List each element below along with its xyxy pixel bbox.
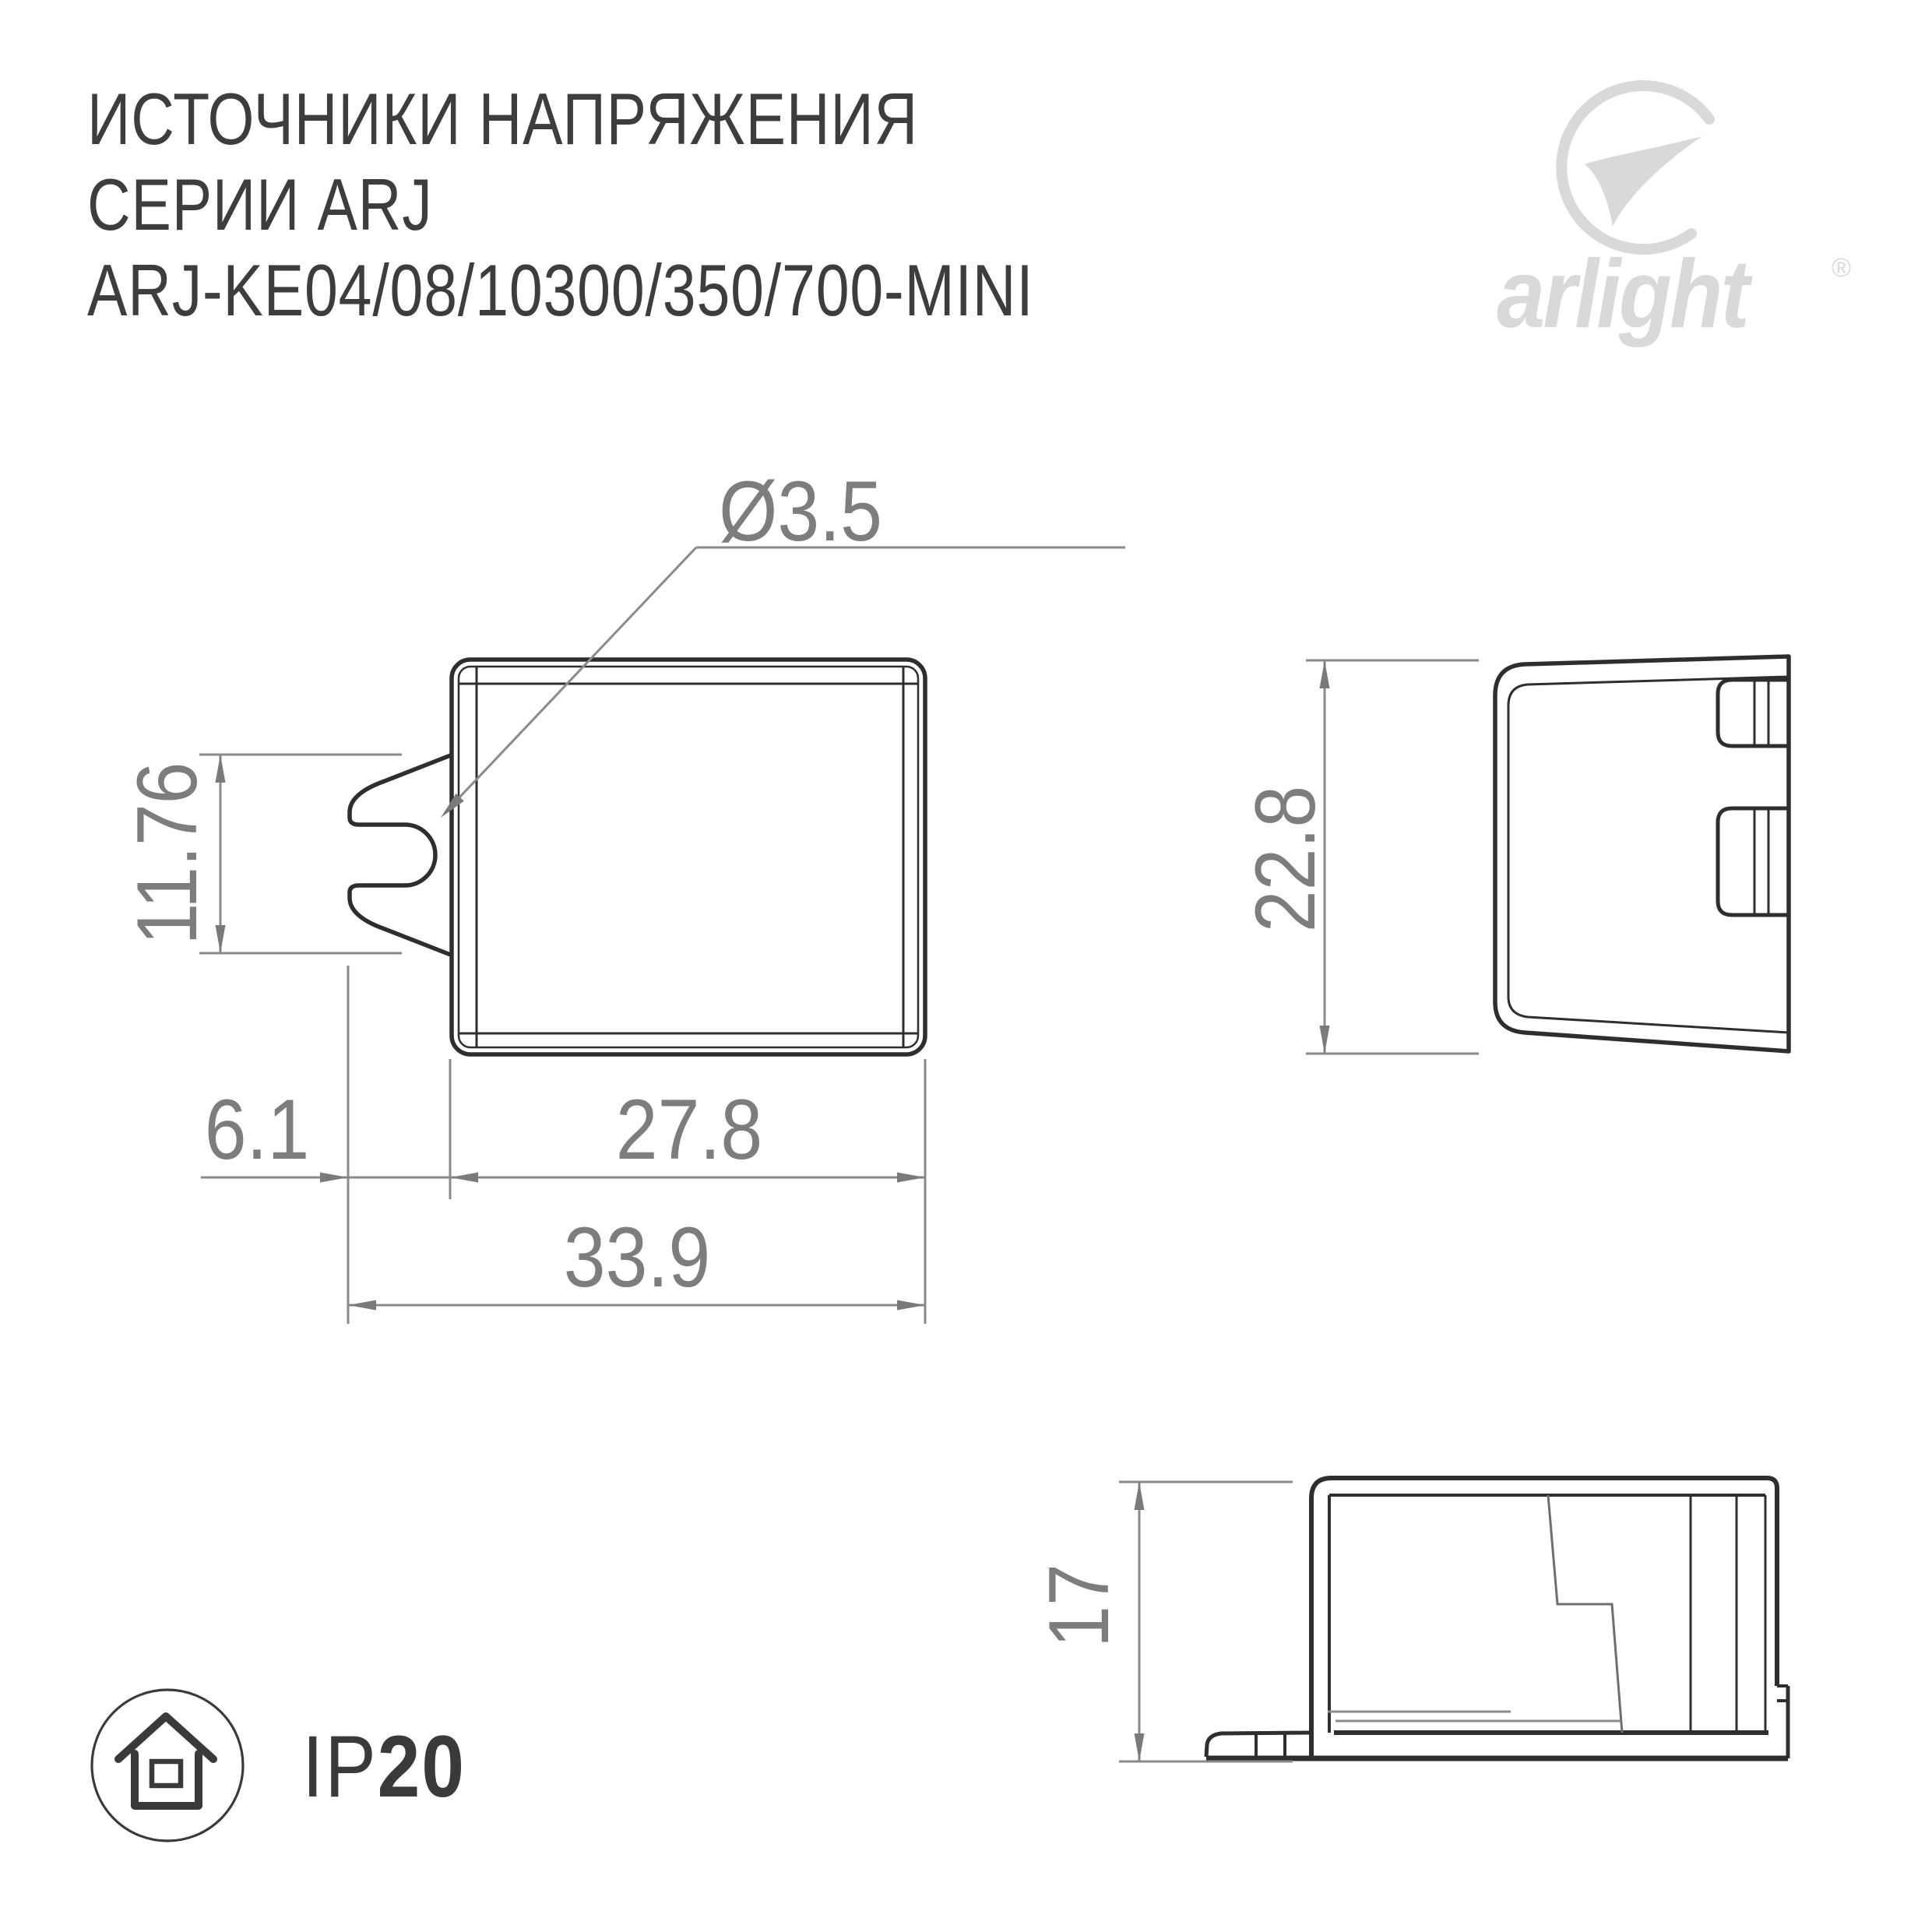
mounting-foot-outline (1206, 1733, 1311, 1757)
arrowhead-left-icon (348, 1300, 376, 1311)
arrowhead-left-icon (450, 1173, 478, 1183)
side-view (1495, 656, 1789, 1051)
dim-widths: 6.1 27.8 33.9 (201, 966, 925, 1324)
arrowhead-up-icon (1135, 1482, 1145, 1510)
profile-view (1206, 1478, 1788, 1758)
ip-value: 20 (378, 1719, 466, 1815)
page-title: ИСТОЧНИКИ НАПРЯЖЕНИЯ СЕРИИ ARJ ARJ-KE04/… (87, 79, 1033, 332)
dim-label-side-height: 22.8 (1237, 786, 1332, 932)
dim-profile-height: 17 (1030, 1482, 1293, 1761)
profile-body-outline (1311, 1478, 1777, 1757)
logo-wordmark: arlight (1497, 240, 1753, 348)
logo-swoosh-icon (1585, 136, 1702, 227)
house-window (152, 1761, 181, 1786)
datasheet-page: ИСТОЧНИКИ НАПРЯЖЕНИЯ СЕРИИ ARJ ARJ-KE04/… (0, 0, 1932, 1932)
mounting-tab-outline (350, 755, 452, 955)
dim-label-total-width: 33.9 (564, 1209, 710, 1304)
arrowhead-right-icon (897, 1173, 925, 1183)
technical-drawing-canvas: ИСТОЧНИКИ НАПРЯЖЕНИЯ СЕРИИ ARJ ARJ-KE04/… (0, 0, 1932, 1932)
ip-rating-label: IP20 (302, 1719, 466, 1815)
dim-label-body-width: 27.8 (616, 1081, 762, 1177)
ip-rating-badge: IP20 (92, 1690, 466, 1841)
dim-label-tab-offset: 6.1 (205, 1081, 310, 1177)
arrowhead-down-icon (1135, 1733, 1145, 1761)
ip-prefix: IP (302, 1719, 378, 1815)
arrowhead-up-icon (216, 755, 226, 783)
dim-label-tab-height: 11.76 (118, 762, 214, 945)
arrowhead-right-icon (897, 1300, 925, 1311)
arrowhead-down-icon (216, 925, 226, 953)
title-line-2: СЕРИИ ARJ (87, 164, 433, 246)
front-body-outline (452, 660, 925, 1054)
dim-tab-height: 11.76 (118, 755, 402, 953)
registered-mark: ® (1832, 253, 1851, 283)
badge-circle (92, 1690, 243, 1841)
arrowhead-right-icon (320, 1173, 348, 1183)
dim-side-height: 22.8 (1237, 660, 1479, 1054)
side-body-outline (1495, 656, 1789, 1051)
profile-internal-pcb-line (1548, 1495, 1622, 1733)
title-line-1: ИСТОЧНИКИ НАПРЯЖЕНИЯ (87, 79, 918, 160)
front-body-inner-shell (459, 667, 918, 1047)
side-body-inner-line (1508, 677, 1789, 1033)
house-icon (118, 1716, 213, 1806)
title-line-3: ARJ-KE04/08/10300/350/700-MINI (87, 250, 1033, 332)
arrowhead-down-icon (1320, 1026, 1330, 1054)
arlight-logo: arlight ® (1497, 86, 1851, 347)
dim-label-profile-height: 17 (1030, 1564, 1126, 1648)
dim-label-hole-diameter: Ø3.5 (719, 463, 882, 558)
dim-hole-diameter: Ø3.5 (441, 463, 1125, 818)
front-view (350, 660, 925, 1054)
arrowhead-up-icon (1320, 660, 1330, 688)
leader-line (445, 547, 696, 812)
